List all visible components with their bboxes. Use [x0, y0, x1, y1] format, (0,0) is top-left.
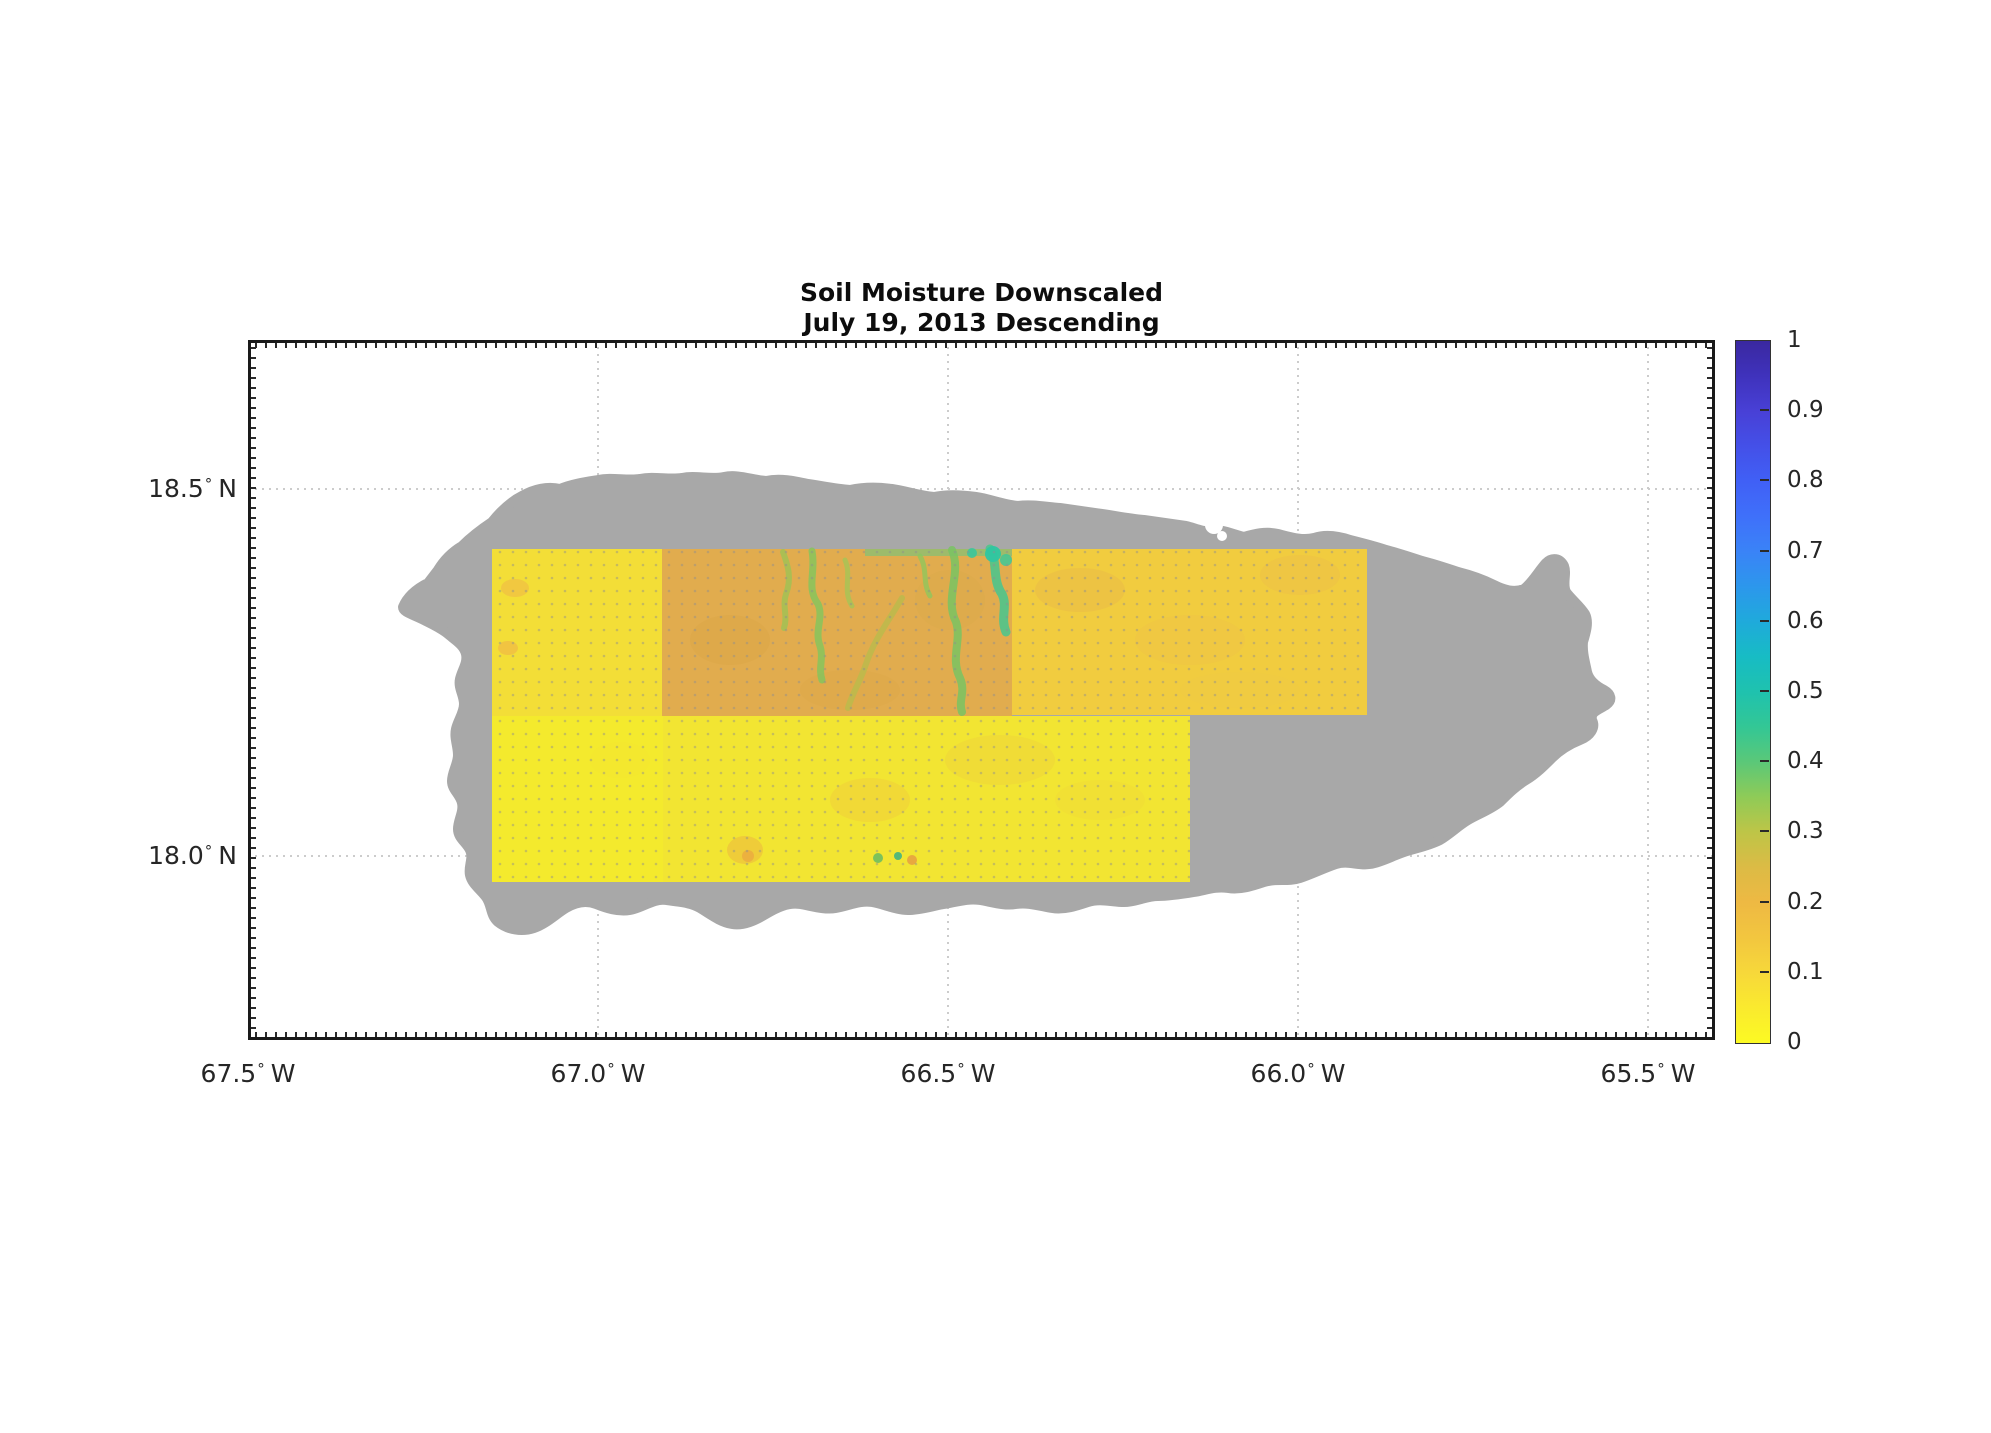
- x-tick-label: 66.5°W: [868, 1058, 1028, 1093]
- southwest-tile-texture: [492, 716, 663, 882]
- colorbar-tick-label: 0.2: [1787, 888, 1824, 916]
- plot-title-line2: July 19, 2013 Descending: [248, 308, 1715, 338]
- northwest-tile-texture: [492, 549, 662, 716]
- colorbar-tick-label: 0.5: [1787, 677, 1824, 705]
- y-tick-label: 18.0°N: [97, 840, 237, 875]
- colorbar-tick-mark: [1760, 550, 1769, 552]
- colorbar: [1735, 340, 1771, 1044]
- colorbar-tick-label: 1: [1787, 326, 1802, 354]
- colorbar-tick-label: 0.8: [1787, 466, 1824, 494]
- colorbar-tick-mark: [1760, 690, 1769, 692]
- north-central-tile-texture: [662, 549, 1012, 716]
- map-axes: [248, 340, 1715, 1040]
- colorbar-tick-mark: [1760, 830, 1769, 832]
- colorbar-tick-label: 0: [1787, 1028, 1802, 1056]
- colorbar-tick-mark: [1760, 760, 1769, 762]
- colorbar-tick-label: 0.6: [1787, 607, 1824, 635]
- plot-title: Soil Moisture Downscaled July 19, 2013 D…: [248, 278, 1715, 338]
- colorbar-tick-mark: [1760, 901, 1769, 903]
- y-tick-label: 18.5°N: [97, 473, 237, 508]
- x-tick-label: 66.0°W: [1218, 1058, 1378, 1093]
- colorbar-tick-mark: [1760, 479, 1769, 481]
- colorbar-tick-label: 0.4: [1787, 747, 1824, 775]
- figure-canvas: Soil Moisture Downscaled July 19, 2013 D…: [0, 0, 1991, 1433]
- colorbar-tick-mark: [1760, 620, 1769, 622]
- colorbar-tick-mark: [1760, 409, 1769, 411]
- colorbar-tick-mark: [1760, 971, 1769, 973]
- colorbar-tick-label: 0.7: [1787, 537, 1824, 565]
- x-tick-label: 65.5°W: [1568, 1058, 1728, 1093]
- colorbar-tick-label: 0.9: [1787, 396, 1824, 424]
- puerto-rico-map: [248, 340, 1715, 1040]
- colorbar-tick-label: 0.1: [1787, 958, 1824, 986]
- south-central-tile-texture: [663, 716, 1190, 882]
- x-tick-label: 67.5°W: [168, 1058, 328, 1093]
- x-tick-label: 67.0°W: [518, 1058, 678, 1093]
- northeast-tile-texture: [1012, 549, 1367, 715]
- colorbar-tick-label: 0.3: [1787, 817, 1824, 845]
- plot-title-line1: Soil Moisture Downscaled: [248, 278, 1715, 308]
